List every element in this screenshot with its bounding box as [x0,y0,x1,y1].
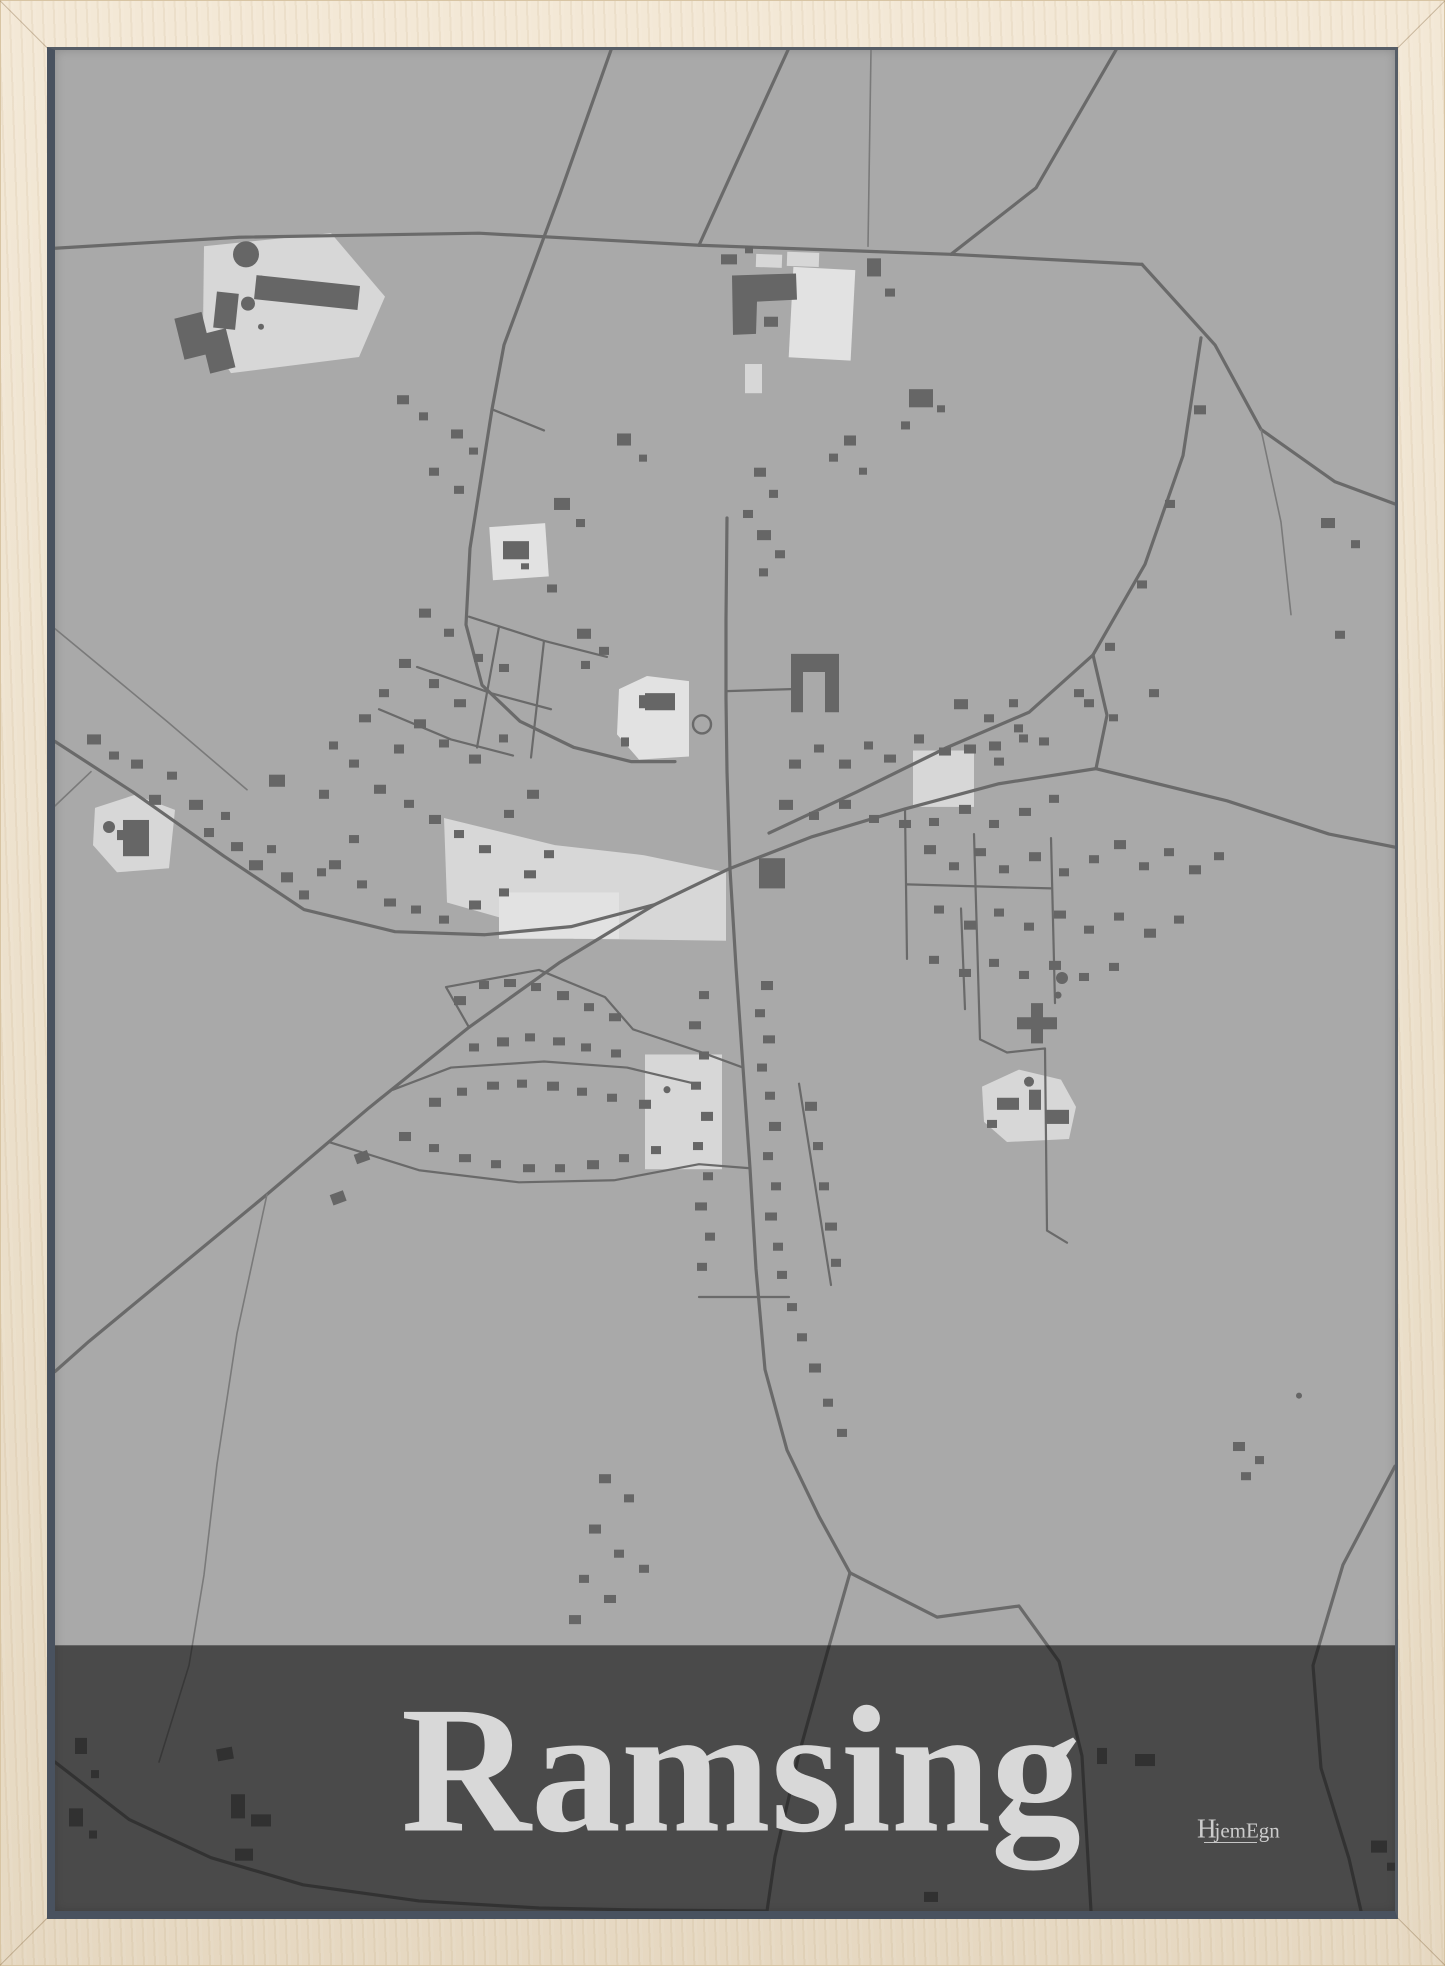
town-map-image: Ramsing HjemEgn [55,50,1395,1911]
frame-miter-top-right [1396,0,1445,50]
svg-text:HjemEgn: HjemEgn [1197,1813,1280,1843]
frame-miter-bottom-right [1396,1916,1445,1966]
brand-logo: HjemEgn [1197,1813,1280,1843]
framed-map-poster: { "poster": { "title": "Ramsing", "brand… [0,0,1445,1966]
frame-miter-bottom-left [0,1916,49,1966]
map-light-areas [93,233,1076,1169]
town-name-title: Ramsing [401,1670,1081,1871]
frame-miter-top-left [0,0,49,50]
roundabout [693,715,711,733]
map-poster: Ramsing HjemEgn [47,47,1398,1919]
brand-rest: jemEgn [1214,1818,1281,1842]
